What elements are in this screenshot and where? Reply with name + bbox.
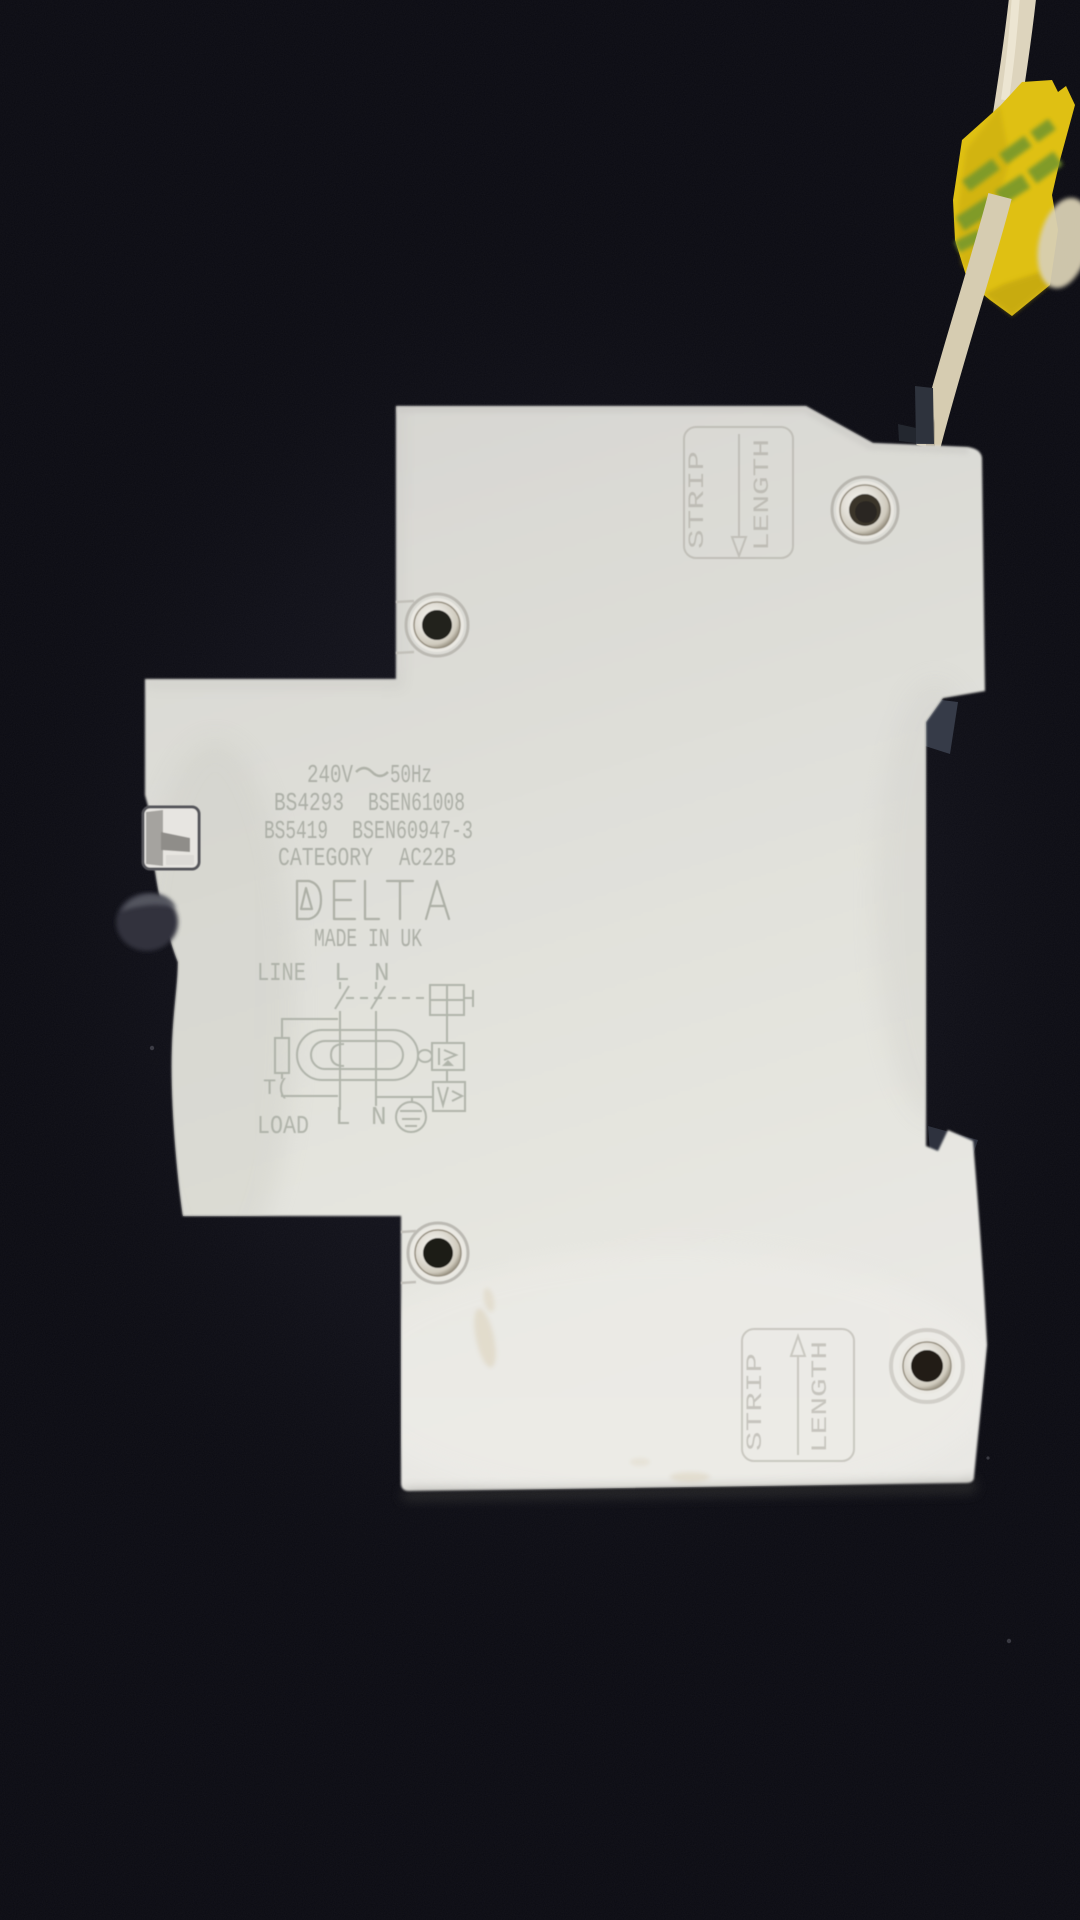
svg-text:AC22B: AC22B [399,843,456,873]
svg-text:T(: T( [263,1076,289,1101]
svg-text:CATEGORY: CATEGORY [278,843,373,873]
svg-text:LENGTH: LENGTH [808,1341,833,1453]
svg-text:LOAD: LOAD [257,1111,309,1141]
svg-text:240V: 240V [307,760,353,790]
svg-text:LINE: LINE [257,958,306,988]
svg-text:N: N [371,1102,387,1132]
svg-text:BS4293: BS4293 [274,788,344,818]
svg-text:L: L [335,1102,351,1132]
svg-text:STRIP: STRIP [743,1353,768,1451]
svg-text:50Hz: 50Hz [390,760,432,790]
svg-text:BSEN61008: BSEN61008 [368,788,465,818]
svg-text:BSEN60947-3: BSEN60947-3 [352,816,473,846]
svg-text:L: L [334,958,350,988]
svg-text:MADE IN UK: MADE IN UK [314,924,422,954]
svg-text:STRIP: STRIP [685,451,710,549]
svg-text:LENGTH: LENGTH [750,439,775,551]
svg-text:BS5419: BS5419 [264,816,328,846]
